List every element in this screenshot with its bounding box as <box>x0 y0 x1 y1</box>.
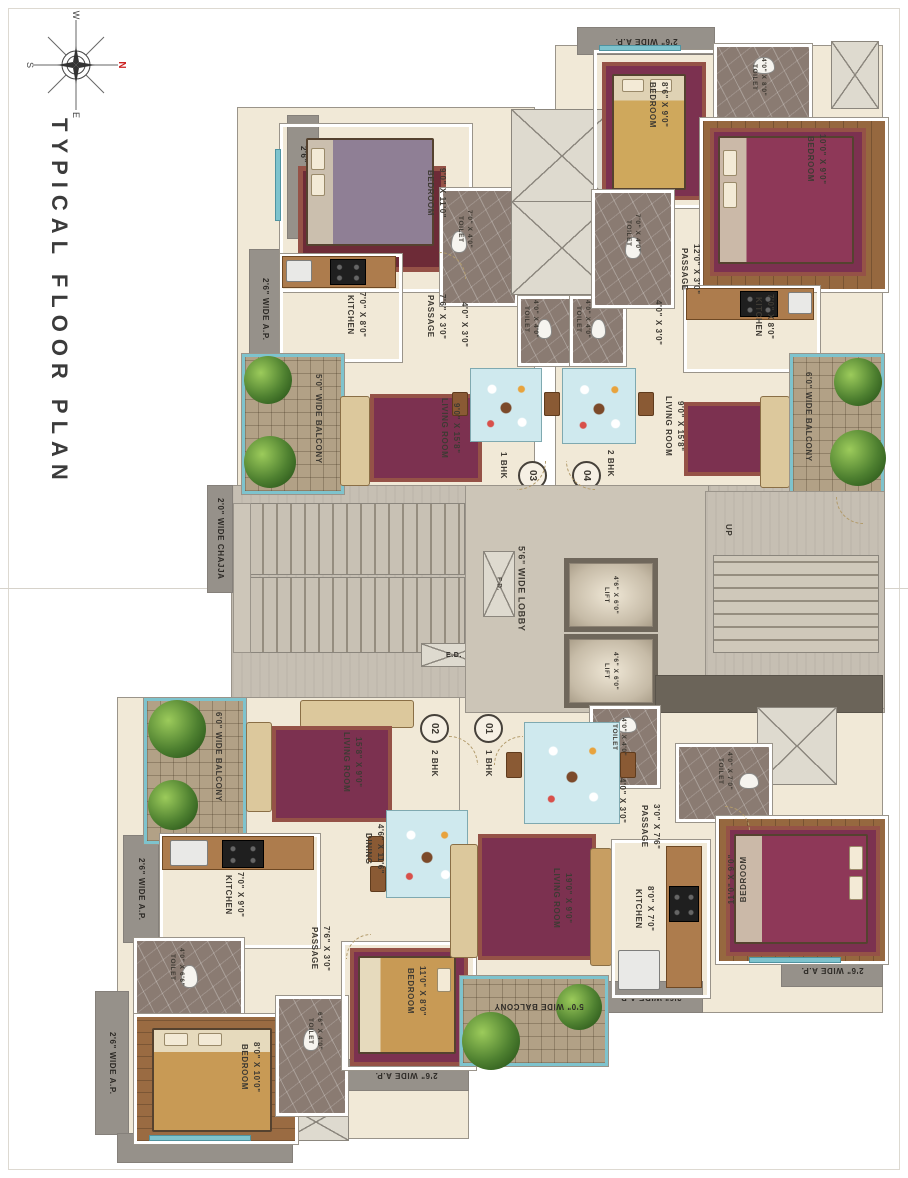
plant <box>148 780 198 830</box>
room-dims: 8'0" X 10'0" <box>250 1042 262 1093</box>
kitchen-04-label: KITCHEN 7'0" X 8'0" <box>752 294 776 340</box>
room-name: BEDROOM <box>804 134 816 185</box>
room-dims: 7'6" X 3'0" <box>320 926 332 972</box>
plant <box>834 358 882 406</box>
room-dims: 9'0" X 15'8" <box>450 398 462 458</box>
room-dims: 7'0" X 9'0" <box>234 872 246 918</box>
bedroom-03-label: BEDROOM 9'0" X 11'0" <box>424 168 448 218</box>
segment-03-label: 4'0" X 3'0" <box>458 302 470 348</box>
room-name: BEDROOM <box>738 854 750 904</box>
room-name: BEDROOM <box>646 82 658 128</box>
segment-01-label: 4'0" X 3'0" <box>616 778 628 824</box>
ed-label: E.D. <box>446 652 462 659</box>
kitchen-04-sink <box>788 292 812 314</box>
room-name: KITCHEN <box>632 886 644 932</box>
window <box>150 1136 250 1140</box>
room-dims: 7'0" X 8'0" <box>356 292 368 338</box>
lift-name: LIFT <box>602 576 611 614</box>
balcony-text: 6'0" WIDE BALCONY <box>212 712 224 802</box>
toilet-02b-label: TOILET 6'6" X 4'0" <box>306 1012 324 1050</box>
room-name: LIVING ROOM <box>662 396 674 456</box>
window <box>750 958 840 962</box>
room-name: PASSAGE <box>308 926 320 972</box>
pillow <box>437 968 451 992</box>
ap-label: 2'6" WIDE A.P. <box>259 278 271 341</box>
room-name: TOILET <box>574 300 583 338</box>
dining-table-03 <box>470 368 542 442</box>
room-dims: 6'6" X 4'0" <box>315 1012 324 1050</box>
chajja-bar-left: 2'0" WIDE CHAJJA <box>208 486 232 592</box>
room-name: BEDROOM <box>404 966 416 1016</box>
room-dims: 4'0" X 8'0" <box>759 58 768 96</box>
unit-01-number-badge: 01 <box>474 714 503 743</box>
compass-e: E <box>71 112 81 118</box>
unit-number: 01 <box>483 723 494 734</box>
room-dims: 8'0" X 7'0" <box>644 886 656 932</box>
chair <box>544 392 560 416</box>
unit-03-type: 1 BHK <box>497 452 509 479</box>
kitchen-02-label: KITCHEN 7'0" X 9'0" <box>222 872 246 918</box>
room-dims: 4'0" X 7'0" <box>725 752 734 790</box>
room-dims: 4'0" X 3'0" <box>458 302 470 348</box>
pillow <box>311 148 325 170</box>
living-02-rug <box>272 726 392 822</box>
kitchen-01-label: KITCHEN 8'0" X 7'0" <box>632 886 656 932</box>
page-title: TYPICAL FLOOR PLAN <box>46 118 72 487</box>
room-dims: 11'0" X 9'0" <box>726 854 738 904</box>
living-02-sofa-side <box>246 722 272 812</box>
dining-table-01 <box>524 722 620 824</box>
unit-02-type: 2 BHK <box>428 750 440 777</box>
lift-1-label: LIFT 4'6" X 6'0" <box>602 576 620 614</box>
room-dims: 9'0" X 11'0" <box>436 168 448 218</box>
room-name: BEDROOM <box>424 168 436 218</box>
dining-table-04 <box>562 368 636 444</box>
room-name: DINING <box>362 824 374 874</box>
living-04-sofa <box>760 396 790 488</box>
plant <box>148 700 206 758</box>
kitchen-02-hob <box>222 840 264 868</box>
balcony-text: 5'0" WIDE BALCONY <box>312 374 324 464</box>
room-name: PASSAGE <box>424 294 436 340</box>
living-01-rug <box>478 834 596 960</box>
bedroom-01-bed <box>734 834 868 944</box>
lobby-label: 5'6" WIDE LOBBY <box>514 546 528 631</box>
bedroom-01-label: BEDROOM 11'0" X 9'0" <box>726 854 750 904</box>
room-name: TOILET <box>168 948 177 986</box>
lift-1: LIFT 4'6" X 6'0" <box>564 558 658 632</box>
unit-type-text: 2 BHK <box>604 450 616 477</box>
room-name: LIVING ROOM <box>438 398 450 458</box>
room-name: LIVING ROOM <box>340 732 352 792</box>
toilet-02a <box>134 938 244 1018</box>
room-name: PASSAGE <box>638 804 650 850</box>
pillow <box>198 1033 222 1046</box>
balcony-04-label: 6'0" WIDE BALCONY <box>802 372 814 462</box>
kitchen-01-hob <box>669 886 699 922</box>
living-04-rug <box>684 402 770 476</box>
staircase-left-lower-flight <box>250 578 464 652</box>
bedroom-04a-label: BEDROOM 8'6" X 9'0" <box>646 82 670 128</box>
kitchen-02-sink <box>170 840 208 866</box>
floor-plan-page: W N S E TYPICAL FLOOR PLAN 2'6" WIDE A.P… <box>0 0 908 1178</box>
pillow <box>723 150 737 176</box>
toilet-fixture <box>739 773 759 789</box>
toilet-fixture <box>591 319 606 339</box>
chajja-label: 2'0" WIDE CHAJJA <box>214 498 226 580</box>
balcony-text: 6'0" WIDE BALCONY <box>802 372 814 462</box>
toilet-02a-label: TOILET 4'0" X 6'6" <box>168 948 186 986</box>
unit-01-type: 1 BHK <box>482 750 494 777</box>
toilet-01a-label: TOILET 4'0" X 4'0" <box>610 718 628 756</box>
kitchen-03-sink <box>286 260 312 282</box>
fire-duct: F.D. <box>484 552 514 616</box>
fd-label: F.D. <box>494 577 503 591</box>
living-04-label: LIVING ROOM 9'0" X 15'8" <box>662 396 686 456</box>
toilet-04b-label: TOILET 7'0" X 4'0" <box>624 214 642 252</box>
balcony-03-label: 5'0" WIDE BALCONY <box>312 374 324 464</box>
living-01-sofa <box>450 844 478 958</box>
room-dims: 10'0" X 9'0" <box>816 134 828 185</box>
kitchen-03-hob <box>330 259 366 285</box>
room-name: TOILET <box>306 1012 315 1050</box>
room-dims: 15'8" X 9'0" <box>352 732 364 792</box>
toilet-01b-label: TOILET 4'0" X 7'0" <box>716 752 734 790</box>
room-name: KITCHEN <box>222 872 234 918</box>
up-text: UP <box>722 524 734 536</box>
balcony-02-label: 6'0" WIDE BALCONY <box>212 712 224 802</box>
room-name: TOILET <box>522 300 531 338</box>
living-01-sideboard <box>590 848 612 966</box>
ap-label: 2'6" WIDE A.P. <box>106 1032 118 1095</box>
room-name: KITCHEN <box>344 292 356 338</box>
room-dims: 4'0" X 4'0" <box>583 300 592 338</box>
living-02-sofa <box>300 700 414 728</box>
pillow <box>622 79 644 92</box>
room-dims: 4'0" X 3'0" <box>616 778 628 824</box>
ap-bar-kitchen02: 2'6" WIDE A.P. <box>124 836 158 942</box>
ap-label: 2'6" WIDE A.P. <box>615 37 678 46</box>
room-name: TOILET <box>456 210 465 248</box>
lift-2-label: LIFT 4'6" X 6'0" <box>602 652 620 690</box>
pillow <box>311 174 325 196</box>
room-name: BEDROOM <box>238 1042 250 1093</box>
compass-rose-icon: W N S E <box>26 10 126 120</box>
ap-label: 2'6" WIDE A.P. <box>135 858 147 921</box>
passage-02-label: PASSAGE 7'6" X 3'0" <box>308 926 332 972</box>
staircase-left-upper-flight <box>250 504 464 574</box>
room-dims: 3'0" X 7'6" <box>650 804 662 850</box>
balcony-01-label: 5'0" WIDE BALCONY <box>494 1002 584 1011</box>
room-dims: 4'0" X 3'0" <box>652 300 664 346</box>
passage-03-label: PASSAGE 7'6" X 3'0" <box>424 294 448 340</box>
core-slab-band <box>656 676 882 712</box>
lift-dims: 4'6" X 6'0" <box>611 576 620 614</box>
plant <box>244 436 296 488</box>
room-dims: 4'0" X 4'0" <box>531 300 540 338</box>
duct-shaft <box>832 42 878 108</box>
unit-type-text: 1 BHK <box>482 750 494 777</box>
room-dims: 11'0" X 8'0" <box>416 966 428 1016</box>
toilet-04a-label: TOILET 4'0" X 8'0" <box>750 58 768 96</box>
unit-04-type: 2 BHK <box>604 450 616 477</box>
ap-bar-left: 2'6" WIDE A.P. <box>250 250 280 368</box>
compass-s: S <box>26 62 35 68</box>
room-dims: 7'0" X 8'0" <box>764 294 776 340</box>
kitchen-03-label: KITCHEN 7'0" X 8'0" <box>344 292 368 338</box>
room-dims: 4'6" X 11'6" <box>374 824 386 874</box>
room-name: LIVING ROOM <box>550 868 562 928</box>
segment-04-label: 4'0" X 3'0" <box>652 300 664 346</box>
bedroom-02a-label: BEDROOM 8'0" X 10'0" <box>238 1042 262 1093</box>
passage-04-label: PASSAGE 12'0" X 3'0" <box>678 244 702 295</box>
bedroom-03-bed <box>306 138 434 246</box>
room-dims: 8'6" X 9'0" <box>658 82 670 128</box>
room-name: PASSAGE <box>678 244 690 295</box>
toilet-03 <box>440 188 518 306</box>
plant <box>462 1012 520 1070</box>
toilet-03-label: TOILET 7'0" X 4'0" <box>456 210 474 248</box>
plant <box>830 430 886 486</box>
bedroom-04b-label: BEDROOM 10'0" X 9'0" <box>804 134 828 185</box>
pillow <box>723 182 737 208</box>
lift-name: LIFT <box>602 652 611 690</box>
room-dims: 4'0" X 6'6" <box>177 948 186 986</box>
window <box>276 150 280 220</box>
ap-label: 2'6" WIDE A.P. <box>801 966 864 975</box>
room-name: TOILET <box>716 752 725 790</box>
bedroom-02b-label: BEDROOM 11'0" X 8'0" <box>404 966 428 1016</box>
pillow <box>164 1033 188 1046</box>
toilet-common-1-label: TOILET 4'0" X 4'0" <box>522 300 540 338</box>
unit-type-text: 1 BHK <box>497 452 509 479</box>
passage-01-label: PASSAGE 3'0" X 7'6" <box>638 804 662 850</box>
pillow <box>849 876 863 900</box>
staircase-left-landing <box>234 504 250 652</box>
room-name: TOILET <box>750 58 759 96</box>
lift-dims: 4'6" X 6'0" <box>611 652 620 690</box>
living-02-label: LIVING ROOM 15'8" X 9'0" <box>340 732 364 792</box>
dining-02-label: DINING 4'6" X 11'6" <box>362 824 386 874</box>
pillow <box>849 846 863 870</box>
chair <box>638 392 654 416</box>
ap-label: 2'6" WIDE A.P. <box>375 1071 438 1080</box>
room-name: TOILET <box>624 214 633 252</box>
ap-bar-bottom-left: 2'6" WIDE A.P. <box>96 992 128 1134</box>
room-name: TOILET <box>610 718 619 756</box>
room-dims: 7'0" X 4'0" <box>465 210 474 248</box>
window <box>600 46 680 50</box>
staircase-right-flight <box>714 556 878 652</box>
bedroom-04b-bed <box>718 136 854 264</box>
lift-2: LIFT 4'6" X 6'0" <box>564 634 658 708</box>
compass-n: N <box>116 61 126 68</box>
room-dims: 19'0" X 9'0" <box>562 868 574 928</box>
room-name: KITCHEN <box>752 294 764 340</box>
living-01-label: LIVING ROOM 19'0" X 9'0" <box>550 868 574 928</box>
kitchen-01-sink <box>618 950 660 990</box>
compass-w: W <box>71 11 81 20</box>
room-dims: 7'6" X 3'0" <box>436 294 448 340</box>
toilet-common-2-label: TOILET 4'0" X 4'0" <box>574 300 592 338</box>
lobby-text: 5'6" WIDE LOBBY <box>514 546 528 631</box>
unit-type-text: 2 BHK <box>428 750 440 777</box>
unit-02-number-badge: 02 <box>420 714 449 743</box>
up-label: UP <box>722 524 734 536</box>
living-03-label: LIVING ROOM 9'0" X 15'8" <box>438 398 462 458</box>
room-dims: 12'0" X 3'0" <box>690 244 702 295</box>
plant <box>244 356 292 404</box>
room-dims: 9'0" X 15'8" <box>674 396 686 456</box>
living-03-sofa <box>340 396 370 486</box>
room-dims: 4'0" X 4'0" <box>619 718 628 756</box>
unit-number: 02 <box>429 723 440 734</box>
room-dims: 7'0" X 4'0" <box>633 214 642 252</box>
